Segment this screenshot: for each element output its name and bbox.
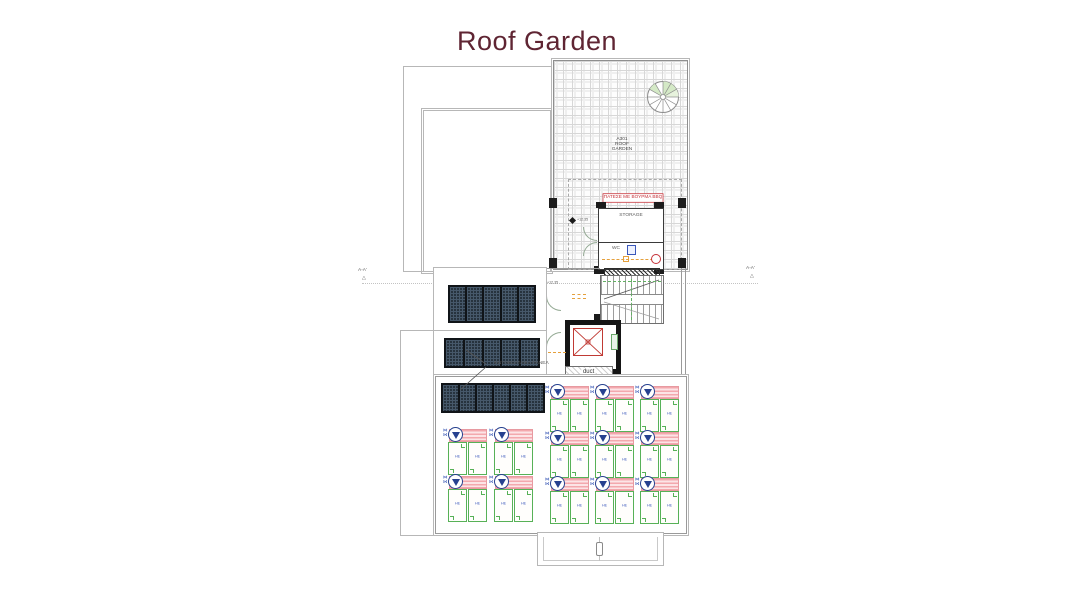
sun-lounger: HE — [660, 399, 679, 432]
sun-lounger: HE — [640, 445, 659, 478]
lounger-label: HE — [498, 455, 508, 459]
room-name-line2: GARDEN — [600, 147, 645, 152]
solar-panel — [519, 287, 534, 321]
sunbed-unit: ⋈⋈HEHE — [591, 432, 633, 477]
lounger-label: HE — [554, 412, 564, 416]
lounger-label: HE — [619, 458, 629, 462]
staircase — [600, 275, 664, 324]
hinge-symbol — [596, 542, 603, 556]
bowtie-icons: ⋈⋈ — [635, 432, 640, 440]
solar-panel — [502, 287, 517, 321]
duct-label: duct — [582, 368, 597, 377]
elevator-x-icon — [574, 329, 602, 355]
sun-lounger: HE — [550, 399, 569, 432]
umbrella-icon — [595, 430, 610, 445]
toilet-icon — [627, 245, 636, 255]
solar-panel — [511, 385, 526, 411]
level-value: +12.35 — [577, 218, 588, 222]
door-arc — [546, 296, 561, 311]
door-arc — [546, 332, 561, 347]
stair-direction-line — [601, 276, 663, 323]
terrace-inner-outline — [421, 108, 553, 274]
lounger-label: HE — [472, 455, 482, 459]
sun-lounger: HE — [468, 489, 487, 522]
umbrella-icon — [448, 427, 463, 442]
column — [549, 258, 557, 268]
elevator-door — [611, 334, 618, 350]
sun-lounger: HE — [494, 442, 513, 475]
sunbed-unit: ⋈⋈HEHE — [546, 386, 588, 431]
bowtie-icons: ⋈⋈ — [443, 476, 448, 484]
bowtie-icons: ⋈⋈ — [489, 429, 494, 437]
lounger-label: HE — [452, 502, 462, 506]
bowtie-icons: ⋈⋈ — [590, 432, 595, 440]
bowtie-icon: ⋈ — [545, 436, 550, 440]
lounger-label: HE — [599, 458, 609, 462]
column — [678, 258, 686, 268]
sun-deck-area: ⋈⋈HEHE⋈⋈HEHE⋈⋈HEHE⋈⋈HEHE⋈⋈HEHE⋈⋈HEHE⋈⋈HE… — [435, 376, 687, 534]
lounger-label: HE — [664, 412, 674, 416]
sunbed-unit: ⋈⋈HEHE — [444, 429, 486, 474]
core-parapet-right — [681, 268, 686, 376]
elevator-car — [573, 328, 603, 356]
lounger-label: HE — [574, 412, 584, 416]
section-marker-right-label: A-A' — [746, 266, 755, 272]
lounger-label: HE — [599, 504, 609, 508]
lounger-label: HE — [472, 502, 482, 506]
sun-lounger: HE — [615, 399, 634, 432]
bowtie-icon: ⋈ — [590, 482, 595, 486]
lounger-label: HE — [554, 458, 564, 462]
lounger-label: HE — [644, 458, 654, 462]
sun-lounger: HE — [550, 491, 569, 524]
sun-lounger: HE — [514, 489, 533, 522]
sun-lounger: HE — [615, 491, 634, 524]
outer-boundary-left — [400, 330, 401, 535]
bowtie-icon: ⋈ — [545, 390, 550, 394]
umbrella-icon — [640, 384, 655, 399]
wc-label: WC — [612, 246, 620, 251]
lounger-label: HE — [574, 458, 584, 462]
umbrella-icon — [595, 476, 610, 491]
solar-panel-group — [448, 285, 536, 323]
section-arrow-left-icon: △ — [362, 276, 366, 282]
sun-lounger: HE — [514, 442, 533, 475]
section-marker-left-label: A-A' — [358, 268, 367, 274]
solar-panel — [484, 287, 499, 321]
sun-lounger: HE — [660, 491, 679, 524]
umbrella-icon — [494, 427, 509, 442]
level-marker-icon — [569, 216, 576, 223]
stair-handrail — [603, 281, 661, 282]
bowtie-icons: ⋈⋈ — [590, 386, 595, 394]
sun-lounger: HE — [570, 491, 589, 524]
storage-label: STORAGE — [605, 213, 656, 218]
sun-lounger: HE — [660, 445, 679, 478]
sunbed-unit: ⋈⋈HEHE — [546, 432, 588, 477]
solar-terrace-1 — [433, 267, 547, 332]
page-title: Roof Garden — [437, 26, 637, 57]
lounger-label: HE — [554, 504, 564, 508]
bowtie-icon: ⋈ — [443, 480, 448, 484]
sun-lounger: HE — [595, 399, 614, 432]
bowtie-icon: ⋈ — [635, 436, 640, 440]
sun-lounger: HE — [494, 489, 513, 522]
section-arrow-right-icon: △ — [750, 274, 754, 280]
sunbed-unit: ⋈⋈HEHE — [591, 386, 633, 431]
sun-lounger: HE — [615, 445, 634, 478]
storage-room: STORAGE — [598, 208, 664, 244]
wc-room: WC — [598, 242, 664, 270]
solar-panel — [528, 385, 543, 411]
lounger-label: HE — [518, 502, 528, 506]
lounger-label: HE — [452, 455, 462, 459]
umbrella-icon — [640, 430, 655, 445]
service-line — [548, 352, 566, 353]
bowtie-icons: ⋈⋈ — [635, 478, 640, 486]
sunbed-unit: ⋈⋈HEHE — [636, 432, 678, 477]
sunbed-unit: ⋈⋈HEHE — [546, 478, 588, 523]
umbrella-icon — [494, 474, 509, 489]
bowtie-icon: ⋈ — [489, 480, 494, 484]
pv-label: ΦΩΤΟΒΟΛΤΑΙΚΑ ΠΑΝΕΛ — [494, 361, 549, 366]
sun-lounger: HE — [640, 399, 659, 432]
lower-balcony — [537, 532, 664, 566]
lounger-label: HE — [574, 504, 584, 508]
lounger-label: HE — [644, 504, 654, 508]
sun-lounger: HE — [640, 491, 659, 524]
bowtie-icons: ⋈⋈ — [443, 429, 448, 437]
sunbed-unit: ⋈⋈HEHE — [636, 478, 678, 523]
lounger-label: HE — [664, 504, 674, 508]
umbrella-icon — [550, 476, 565, 491]
sunbed-unit: ⋈⋈HEHE — [490, 476, 532, 521]
bowtie-icon: ⋈ — [635, 482, 640, 486]
umbrella-icon — [550, 384, 565, 399]
sun-lounger: HE — [448, 442, 467, 475]
spiral-stair-icon — [646, 80, 680, 114]
pv-leader-lines — [450, 345, 510, 395]
lounger-label: HE — [644, 412, 654, 416]
bowtie-icon: ⋈ — [635, 390, 640, 394]
umbrella-icon — [448, 474, 463, 489]
bowtie-icon: ⋈ — [489, 433, 494, 437]
room-label: A301 ROOF GARDEN — [600, 137, 645, 151]
sunbed-unit: ⋈⋈HEHE — [444, 476, 486, 521]
bowtie-icons: ⋈⋈ — [545, 386, 550, 394]
bowtie-icon: ⋈ — [590, 436, 595, 440]
outer-boundary-top — [400, 330, 433, 331]
sun-lounger: HE — [550, 445, 569, 478]
service-line — [602, 259, 658, 260]
bowtie-icons: ⋈⋈ — [590, 478, 595, 486]
sun-lounger: HE — [570, 399, 589, 432]
sun-lounger: HE — [595, 491, 614, 524]
service-line — [572, 294, 586, 295]
bowtie-icon: ⋈ — [590, 390, 595, 394]
sunbed-unit: ⋈⋈HEHE — [636, 386, 678, 431]
service-line — [572, 298, 586, 299]
sun-lounger: HE — [468, 442, 487, 475]
solar-panel — [450, 287, 465, 321]
level-value: +12.35 — [547, 281, 558, 285]
bowtie-icon: ⋈ — [545, 482, 550, 486]
core-wall-top — [545, 268, 600, 269]
sunbed-unit: ⋈⋈HEHE — [490, 429, 532, 474]
umbrella-icon — [640, 476, 655, 491]
lounger-label: HE — [599, 412, 609, 416]
sunbed-unit: ⋈⋈HEHE — [591, 478, 633, 523]
level-marker: +12.35 — [570, 217, 596, 223]
sun-lounger: HE — [448, 489, 467, 522]
floor-plan-canvas: Roof Garden A-A' △ A-A' △ — [0, 0, 1075, 595]
bowtie-icons: ⋈⋈ — [545, 432, 550, 440]
sun-lounger: HE — [595, 445, 614, 478]
column — [549, 198, 557, 208]
stair-handrail — [631, 279, 632, 320]
service-node — [623, 256, 629, 262]
outer-boundary-bottom — [400, 535, 436, 536]
umbrella-icon — [550, 430, 565, 445]
umbrella-icon — [595, 384, 610, 399]
column — [678, 198, 686, 208]
lounger-label: HE — [498, 502, 508, 506]
bowtie-icons: ⋈⋈ — [489, 476, 494, 484]
bowtie-icons: ⋈⋈ — [635, 386, 640, 394]
solar-panel — [467, 287, 482, 321]
lounger-label: HE — [664, 458, 674, 462]
lounger-label: HE — [619, 504, 629, 508]
fixture-icon — [651, 254, 661, 264]
sun-lounger: HE — [570, 445, 589, 478]
lounger-label: HE — [619, 412, 629, 416]
bowtie-icon: ⋈ — [443, 433, 448, 437]
bowtie-icons: ⋈⋈ — [545, 478, 550, 486]
lounger-label: HE — [518, 455, 528, 459]
